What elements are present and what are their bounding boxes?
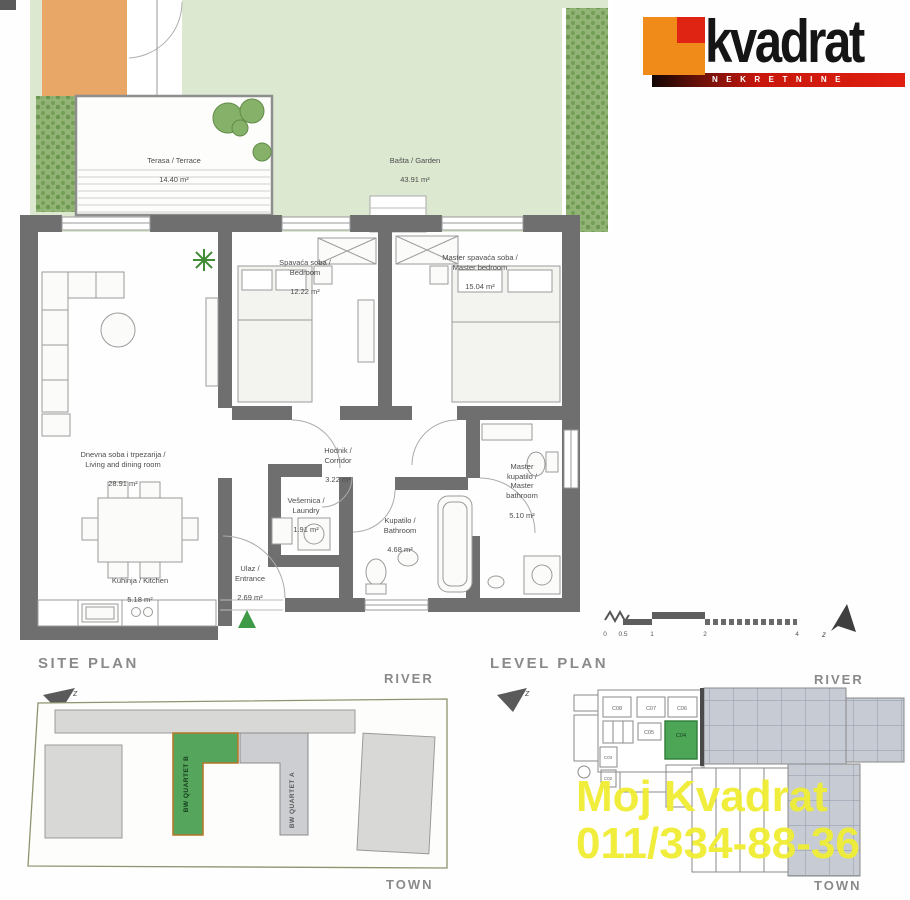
site-plan: z BW QUARTET B BW QUARTET A bbox=[25, 650, 460, 900]
room-name: Kupatilo / Bathroom bbox=[366, 516, 434, 536]
scale-tick: 2 bbox=[703, 631, 707, 638]
unit-c07-label: C07 bbox=[646, 706, 656, 712]
terrace-label: Terasa / Terrace 14.40 m² bbox=[76, 146, 272, 195]
master-bathroom-label: Master kupatilo / Master bathroom 5.10 m… bbox=[484, 452, 560, 530]
logo-square-icon bbox=[643, 17, 705, 75]
room-name: Terasa / Terrace bbox=[76, 156, 272, 166]
entrance-label: Ulaz / Entrance 2.69 m² bbox=[220, 554, 280, 613]
site-plan-title: SITE PLAN bbox=[38, 655, 139, 672]
sofa bbox=[42, 272, 124, 436]
logo-wordmark: kvadrat bbox=[705, 10, 863, 73]
unit-c03-label: C03 bbox=[604, 755, 613, 760]
room-name: Vešernica / Laundry bbox=[274, 496, 338, 516]
scale-bar: 0 0.5 1 2 4 bbox=[603, 612, 799, 638]
river-label-right: RIVER bbox=[814, 672, 864, 687]
town-label-right: TOWN bbox=[814, 878, 861, 893]
scanned-floorplan-page: Terasa / Terrace 14.40 m² Bašta / Garden… bbox=[0, 0, 910, 900]
bathroom-label: Kupatilo / Bathroom 4.68 m² bbox=[366, 506, 434, 565]
bedroom-label: Spavaća soba / Bedroom 12.22 m² bbox=[234, 248, 376, 307]
garden-area bbox=[30, 0, 612, 232]
master-bedroom-label: Master spavaća soba / Master bedroom 15.… bbox=[398, 243, 562, 302]
paved-area bbox=[42, 0, 127, 96]
living-room-label: Dnevna soba i trpezarija / Living and di… bbox=[48, 440, 198, 499]
coffee-table bbox=[101, 313, 135, 347]
room-area: 43.91 m² bbox=[340, 175, 490, 185]
agency-watermark: Moj Kvadrat 011/334-88-36 bbox=[576, 774, 910, 867]
site-compass-label: z bbox=[72, 688, 78, 698]
unit-c05-label: C05 bbox=[644, 730, 654, 736]
north-arrow-icon bbox=[831, 604, 856, 632]
room-area: 1.91 m² bbox=[274, 525, 338, 535]
entrance-marker-icon bbox=[238, 610, 256, 628]
room-name: Kuhinja / Kitchen bbox=[78, 576, 202, 586]
room-area: 5.18 m² bbox=[78, 595, 202, 605]
north-arrow-label: z bbox=[821, 630, 826, 639]
scale-tick: 1 bbox=[650, 631, 654, 638]
town-label-left: TOWN bbox=[386, 877, 433, 892]
kitchen-label: Kuhinja / Kitchen 5.18 m² bbox=[78, 566, 202, 615]
building-quartet-a-label: BW QUARTET A bbox=[289, 772, 296, 828]
logo-red-square-icon bbox=[677, 17, 705, 43]
room-area: 15.04 m² bbox=[398, 282, 562, 292]
room-name: Bašta / Garden bbox=[340, 156, 490, 166]
level-compass-icon bbox=[497, 688, 527, 712]
room-name: Dnevna soba i trpezarija / Living and di… bbox=[48, 450, 198, 470]
hedge-left bbox=[36, 96, 76, 212]
scale-tick: 0.5 bbox=[618, 631, 627, 638]
level-plan-title: LEVEL PLAN bbox=[490, 655, 608, 672]
room-area: 14.40 m² bbox=[76, 175, 272, 185]
level-compass-label: z bbox=[524, 688, 530, 698]
river-label-left: RIVER bbox=[384, 671, 434, 686]
room-name: Hodnik / Corridor bbox=[302, 446, 374, 466]
brand-logo: NEKRETNINE kvadrat bbox=[643, 10, 907, 92]
floor-plan bbox=[0, 0, 910, 650]
garden-label: Bašta / Garden 43.91 m² bbox=[340, 146, 490, 195]
room-area: 5.10 m² bbox=[484, 511, 560, 521]
unit-c06-label: C06 bbox=[677, 706, 687, 712]
room-area: 2.69 m² bbox=[220, 593, 280, 603]
room-name: Ulaz / Entrance bbox=[220, 564, 280, 584]
plant-icon bbox=[193, 249, 215, 271]
room-name: Master kupatilo / Master bathroom bbox=[484, 462, 560, 501]
room-area: 4.68 m² bbox=[366, 545, 434, 555]
bathtub bbox=[438, 496, 472, 592]
scan-corner-mark bbox=[0, 0, 16, 10]
tv-bench bbox=[206, 298, 218, 386]
scale-tick: 4 bbox=[795, 631, 799, 638]
watermark-name: Moj Kvadrat bbox=[576, 772, 828, 821]
unit-c04-label: C04 bbox=[676, 733, 686, 739]
unit-c04-highlighted bbox=[665, 721, 697, 759]
logo-tagline-bar: NEKRETNINE bbox=[652, 73, 905, 87]
building-quartet-b-label: BW QUARTET B bbox=[183, 756, 190, 813]
room-name: Master spavaća soba / Master bedroom bbox=[398, 253, 562, 273]
laundry-label: Vešernica / Laundry 1.91 m² bbox=[274, 486, 338, 545]
room-area: 12.22 m² bbox=[234, 287, 376, 297]
watermark-phone: 011/334-88-36 bbox=[576, 819, 860, 868]
room-area: 3.22 m² bbox=[302, 475, 374, 485]
room-name: Spavaća soba / Bedroom bbox=[234, 258, 376, 278]
hedge-right bbox=[566, 8, 608, 232]
room-area: 28.91 m² bbox=[48, 479, 198, 489]
unit-c08-label: C08 bbox=[612, 706, 622, 712]
scale-tick: 0 bbox=[603, 631, 607, 638]
